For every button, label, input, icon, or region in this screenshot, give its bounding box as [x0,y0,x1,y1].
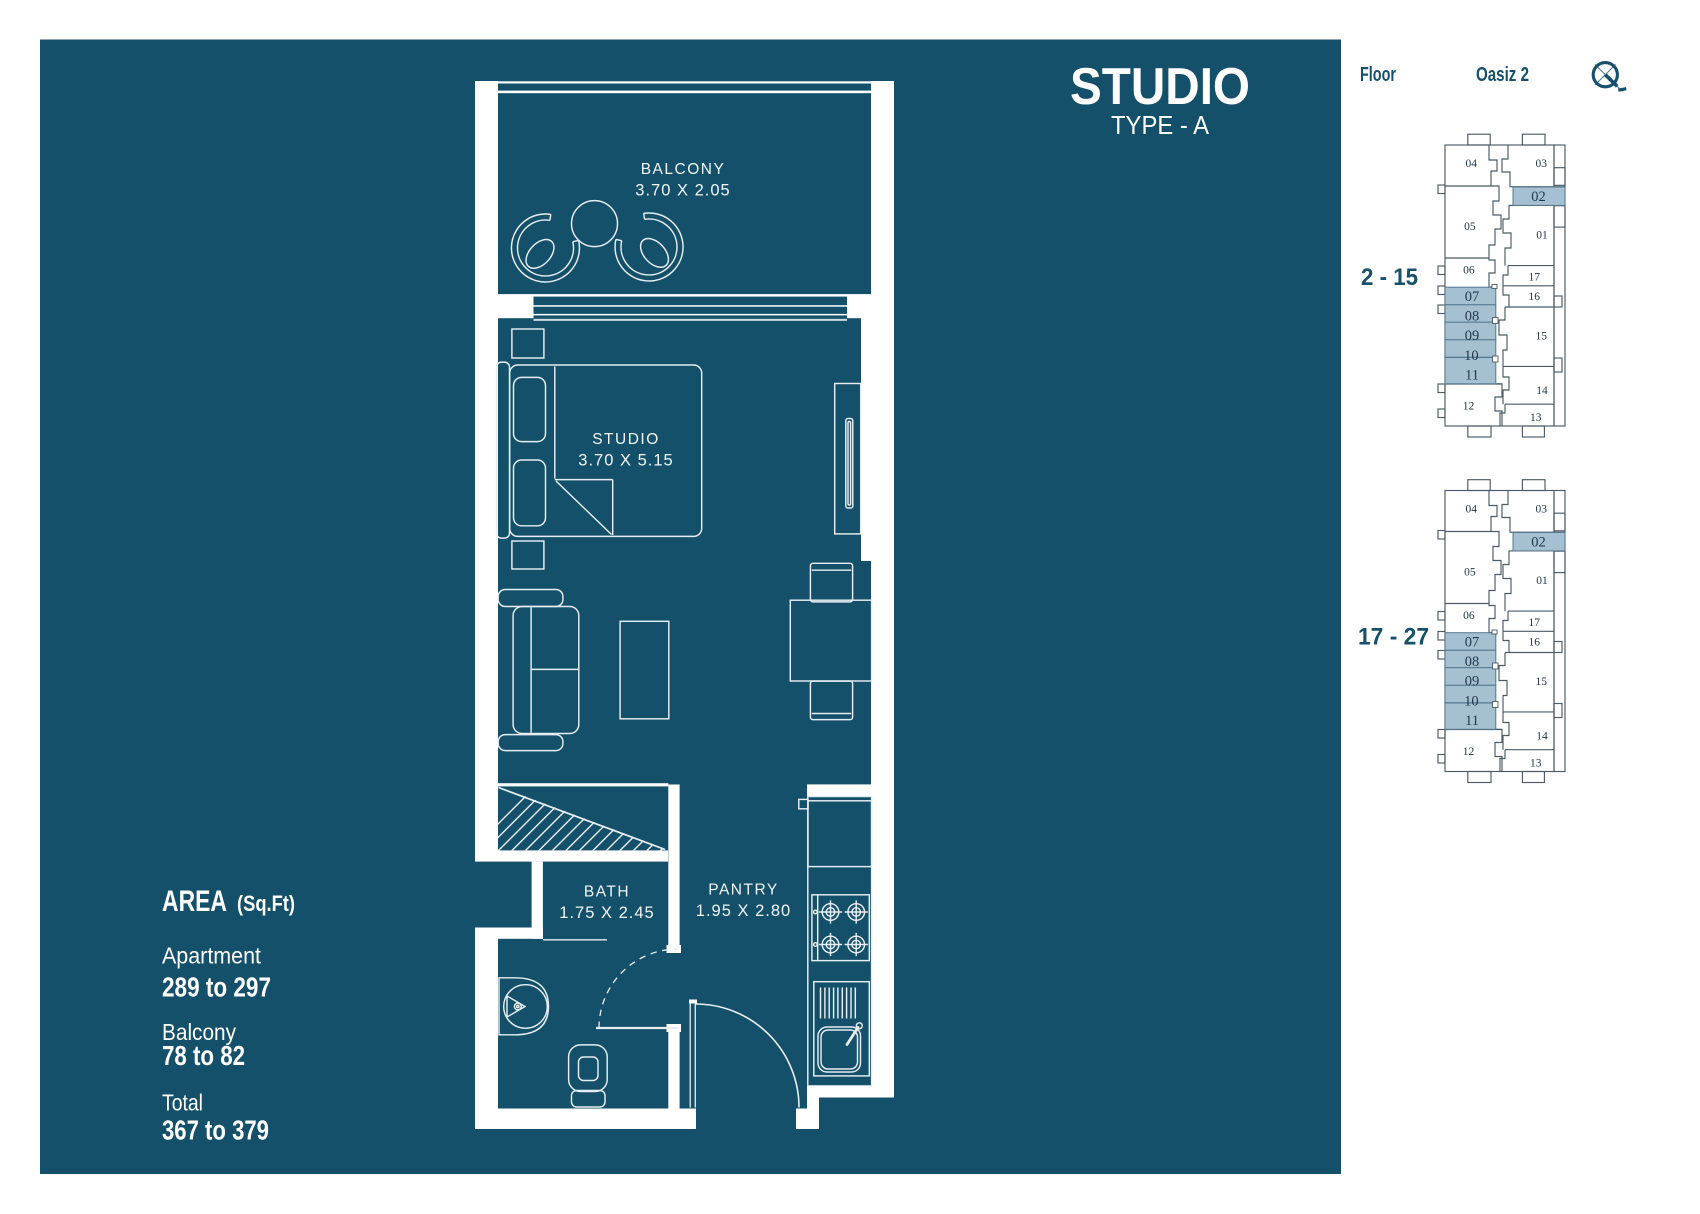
svg-text:10: 10 [1464,693,1479,709]
svg-text:05: 05 [1464,221,1476,233]
svg-text:78 to 82: 78 to 82 [162,1040,245,1071]
svg-text:07: 07 [1465,289,1480,305]
svg-text:07: 07 [1465,634,1480,650]
svg-text:TYPE - A: TYPE - A [1111,110,1210,140]
svg-text:Apartment: Apartment [162,943,261,969]
svg-text:12: 12 [1463,746,1475,758]
svg-text:17: 17 [1529,271,1541,283]
svg-text:09: 09 [1465,674,1480,690]
svg-text:BATH: BATH [584,884,630,901]
svg-text:1.75 X 2.45: 1.75 X 2.45 [559,904,654,922]
svg-text:289 to 297: 289 to 297 [162,972,271,1003]
svg-text:13: 13 [1530,757,1542,769]
svg-text:04: 04 [1466,158,1478,170]
svg-text:16: 16 [1529,637,1541,649]
svg-text:08: 08 [1465,654,1480,670]
svg-text:11: 11 [1465,368,1479,384]
svg-text:05: 05 [1464,567,1476,579]
svg-text:Total: Total [162,1090,203,1116]
svg-text:02: 02 [1531,189,1546,205]
svg-text:367 to 379: 367 to 379 [162,1115,269,1146]
svg-text:PANTRY: PANTRY [708,882,778,899]
svg-text:STUDIO: STUDIO [1070,58,1250,116]
svg-text:04: 04 [1466,504,1478,516]
svg-text:16: 16 [1529,291,1541,303]
svg-text:08: 08 [1465,309,1480,325]
svg-text:15: 15 [1536,331,1548,343]
svg-text:13: 13 [1530,412,1542,424]
svg-text:3.70 X 2.05: 3.70 X 2.05 [635,182,730,200]
svg-text:17 - 27: 17 - 27 [1358,624,1429,651]
svg-text:02: 02 [1531,535,1546,551]
svg-text:BALCONY: BALCONY [641,161,726,178]
svg-text:09: 09 [1465,328,1480,344]
svg-text:2 - 15: 2 - 15 [1361,264,1418,291]
svg-text:03: 03 [1536,504,1548,516]
svg-text:12: 12 [1463,401,1475,413]
svg-text:(Sq.Ft): (Sq.Ft) [237,891,295,916]
svg-text:10: 10 [1464,348,1479,364]
svg-text:14: 14 [1536,385,1548,397]
svg-text:01: 01 [1536,575,1548,587]
svg-text:06: 06 [1463,264,1475,276]
svg-text:Floor: Floor [1360,63,1396,86]
svg-text:17: 17 [1529,617,1541,629]
svg-text:14: 14 [1536,731,1548,743]
svg-text:15: 15 [1536,676,1548,688]
svg-text:1.95 X 2.80: 1.95 X 2.80 [696,902,791,920]
svg-text:3.70 X 5.15: 3.70 X 5.15 [578,452,673,470]
svg-text:11: 11 [1465,713,1479,729]
svg-text:STUDIO: STUDIO [592,431,660,448]
svg-text:06: 06 [1463,610,1475,622]
svg-text:AREA: AREA [162,885,227,918]
svg-text:01: 01 [1536,230,1548,242]
svg-text:03: 03 [1536,158,1548,170]
svg-text:Oasiz 2: Oasiz 2 [1476,63,1529,86]
